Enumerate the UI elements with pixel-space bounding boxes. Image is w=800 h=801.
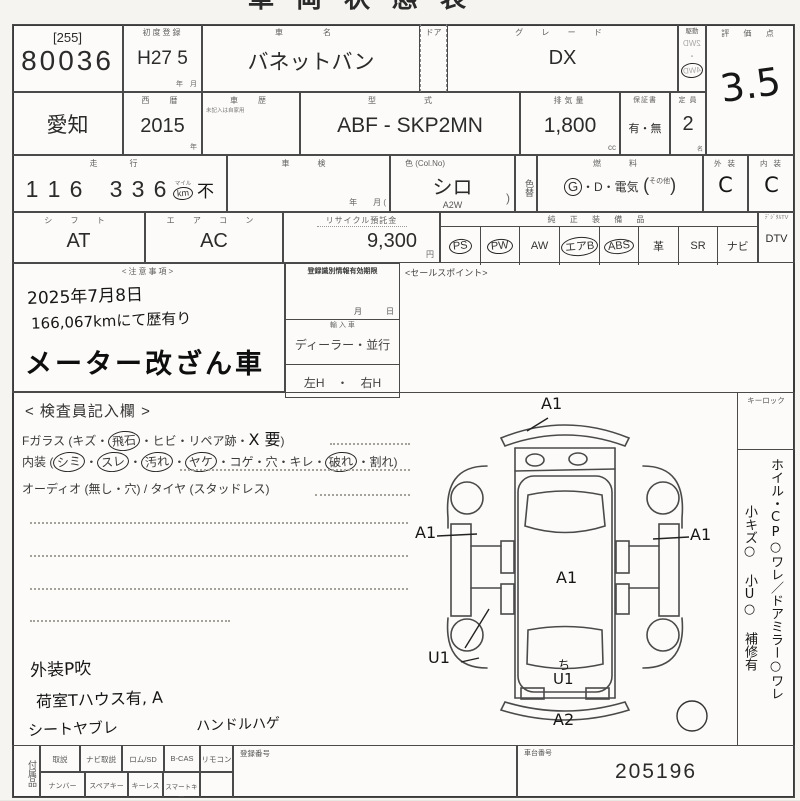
mileage-digit: 6 bbox=[65, 176, 87, 203]
divider bbox=[12, 392, 795, 393]
chassis-number: 205196 bbox=[518, 760, 794, 784]
recycle-label: リサイクル預託金 bbox=[317, 215, 407, 227]
dotted-line bbox=[180, 469, 410, 471]
equip-abs: ABS bbox=[599, 227, 639, 265]
history-label: 車 歴 bbox=[203, 95, 299, 106]
history-box: 車 歴 未記入は自家用 bbox=[202, 92, 300, 155]
shift-label: シ フ ト bbox=[13, 215, 144, 226]
first-registration-unit: 年 月 bbox=[176, 79, 197, 89]
model-value: ABF - SKP2MN bbox=[301, 114, 519, 138]
aircon-box: エ ア コ ン AC bbox=[145, 212, 283, 263]
mileage-hand-mark: 不 bbox=[197, 177, 214, 202]
damage-mark-rear-door: U1 bbox=[553, 670, 574, 688]
interior-grade: C bbox=[749, 173, 794, 197]
chassis-number-box: 車台番号 205196 bbox=[517, 745, 795, 798]
equipment-box: 純 正 装 備 品 PS PW AW エアB ABS 革 SR ナビ bbox=[440, 212, 758, 263]
cell-rom-sd: ロム/SD bbox=[122, 745, 164, 772]
exterior-grade-box: 外 装 C bbox=[703, 155, 748, 212]
cell-number-plate: ナンバー bbox=[40, 772, 85, 798]
displacement-box: 排気量 1,800 cc bbox=[520, 92, 620, 155]
color-box: 色 (Col.No) シロ A2W ) bbox=[390, 155, 515, 212]
equip-leather: 革 bbox=[638, 227, 678, 265]
hand-note-handle: ハンドルハゲ bbox=[196, 713, 281, 736]
prefecture-value: 愛知 bbox=[13, 109, 122, 139]
meter-tampered-stamp: メーター改ざん車 bbox=[25, 342, 265, 381]
recycle-unit: 円 bbox=[426, 249, 434, 260]
damage-mark-front: A1 bbox=[541, 394, 562, 413]
drive-separator: ・ bbox=[688, 52, 696, 61]
sales-point-label: <セールスポイント> bbox=[405, 266, 488, 279]
interior-stain-circled: シミ bbox=[53, 451, 87, 474]
cell-smart-key: スマートキー bbox=[163, 772, 200, 798]
history-note: 未記入は自家用 bbox=[203, 106, 299, 114]
mileage-digit: 3 bbox=[127, 176, 149, 203]
dtv-box: ﾃﾞｼﾞﾀﾙTV DTV bbox=[758, 212, 795, 263]
dealer-parallel-label: ディーラー・並行 bbox=[286, 336, 399, 353]
equip-pw: PW bbox=[480, 227, 520, 265]
mileage-digit: 3 bbox=[105, 176, 127, 203]
grade-box: グ レ ー ド DX bbox=[447, 24, 678, 92]
equip-sr: SR bbox=[678, 227, 718, 265]
audio-tire-line: オーディオ (無し・穴) / タイヤ (スタッドレス) bbox=[22, 480, 269, 497]
interior-dirt-circled: 汚れ bbox=[141, 451, 175, 474]
first-registration-value: H27 5 bbox=[124, 48, 201, 70]
first-registration-box: 初度登録 H27 5 年 月 bbox=[123, 24, 202, 92]
model-box: 型 式 ABF - SKP2MN bbox=[300, 92, 520, 155]
year-label: 西 暦 bbox=[124, 95, 201, 106]
caution-line1: 2025年7月8日 bbox=[27, 280, 144, 309]
registration-number-box: 登録番号 bbox=[233, 745, 517, 798]
car-name: バネットバン bbox=[203, 46, 419, 76]
first-registration-label: 初度登録 bbox=[124, 27, 201, 38]
interior-label: 内 装 bbox=[749, 158, 794, 169]
warranty-box: 保証書 有・無 bbox=[620, 92, 670, 155]
mileage-km-circled: km bbox=[172, 186, 193, 201]
damage-mark-left: A1 bbox=[415, 523, 436, 542]
drive-option-4wd-circled: 4WD bbox=[680, 62, 703, 79]
shaken-box: 車 検 年 月 ( bbox=[227, 155, 390, 212]
shift-box: シ フ ト AT bbox=[12, 212, 145, 263]
score-value: 3.5 bbox=[704, 57, 796, 113]
fuel-box: 燃 料 G・D・電気 (その他) bbox=[537, 155, 703, 212]
cell-manual: 取説 bbox=[40, 745, 80, 772]
damage-mark-roof: A1 bbox=[556, 568, 577, 587]
dotted-line bbox=[30, 522, 408, 524]
cell-empty bbox=[200, 772, 233, 798]
capacity-label: 定 員 bbox=[671, 95, 705, 106]
year-value: 2015 bbox=[124, 115, 201, 138]
dotted-line bbox=[30, 588, 408, 590]
fuel-other-label: その他 bbox=[649, 178, 670, 185]
drive-option-2wd: 2WD bbox=[683, 37, 701, 50]
chassis-number-label: 車台番号 bbox=[518, 746, 794, 758]
dotted-line bbox=[315, 494, 410, 496]
year-unit: 年 bbox=[190, 142, 197, 152]
score-box: 評 価 点 3.5 bbox=[706, 24, 795, 155]
mileage-box: 走 行 1 1 6 3 3 6 マイル km 不 bbox=[12, 155, 227, 212]
equip-ps: PS bbox=[441, 227, 480, 265]
grade-label: グ レ ー ド bbox=[448, 27, 677, 38]
color-change-box: 色替 bbox=[515, 155, 537, 212]
fuel-gasoline-circled: G bbox=[563, 177, 583, 197]
glass-hand-mark: X 要 bbox=[248, 430, 280, 449]
dotted-line bbox=[330, 443, 410, 445]
import-label: 輸 入 車 bbox=[286, 319, 399, 330]
interior-scratch-circled: スレ bbox=[97, 451, 131, 474]
handle-position-label: 左H ・ 右H bbox=[286, 374, 399, 391]
caution-line2: 166,067kmにて歴有り bbox=[31, 307, 192, 334]
hand-note-seat: シートヤブレ bbox=[28, 716, 119, 740]
dotted-line bbox=[30, 555, 408, 557]
auction-sheet: 車両状態表 [255] 80036 初度登録 H27 5 年 月 車 名 バネッ… bbox=[0, 0, 800, 800]
caution-box: <注意事項> 2025年7月8日 166,067kmにて歴有り メーター改ざん車 bbox=[12, 263, 285, 392]
registration-info-box: 登録識別情報有効期限 月 日 輸 入 車 ディーラー・並行 左H ・ 右H bbox=[285, 263, 400, 398]
warranty-value: 有・無 bbox=[621, 120, 669, 136]
color-value: シロ bbox=[391, 171, 514, 200]
capacity-value: 2 bbox=[671, 113, 705, 136]
score-label: 評 価 点 bbox=[707, 28, 794, 39]
mileage-label: 走 行 bbox=[13, 158, 226, 169]
fuel-paren-close: ) bbox=[670, 175, 676, 195]
registration-info-title: 登録識別情報有効期限 bbox=[286, 266, 399, 276]
sidebar-note-col1: ホイル・CP○ワレ／ドアミラー○ワレ bbox=[768, 458, 783, 743]
fuel-label: 燃 料 bbox=[538, 158, 702, 169]
exterior-label: 外 装 bbox=[704, 158, 747, 169]
car-name-box: 車 名 バネットバン bbox=[202, 24, 420, 92]
hand-note-cargo: 荷室Tハウス有, A bbox=[36, 684, 164, 712]
equip-airbag: エアB bbox=[559, 227, 599, 265]
cell-remote: リモコン bbox=[200, 745, 233, 772]
damage-mark-lower-left: U1 bbox=[428, 648, 450, 667]
color-paren: ) bbox=[506, 191, 510, 205]
dtv-header: ﾃﾞｼﾞﾀﾙTV bbox=[759, 213, 794, 221]
dtv-value: DTV bbox=[759, 233, 794, 245]
color-label: 色 (Col.No) bbox=[391, 158, 514, 169]
capacity-unit: 名 bbox=[697, 144, 703, 153]
interior-grade-box: 内 装 C bbox=[748, 155, 795, 212]
car-name-label: 車 名 bbox=[203, 27, 419, 38]
year-box: 西 暦 2015 年 bbox=[123, 92, 202, 155]
shaken-label: 車 検 bbox=[228, 158, 389, 169]
keylock-label: キーロック bbox=[738, 395, 794, 406]
mileage-digit: 1 bbox=[21, 176, 43, 203]
shaken-unit: 年 月 ( bbox=[349, 197, 386, 208]
cell-bcas: B-CAS bbox=[164, 745, 200, 772]
sidebar-note-col2: 小キズ○ 小U○ 補修有 bbox=[742, 505, 757, 743]
cell-navi-manual: ナビ取説 bbox=[80, 745, 122, 772]
page-title: 車両状態表 bbox=[248, 0, 488, 11]
capacity-box: 定 員 2 名 bbox=[670, 92, 706, 155]
inspector-title: < 検査員記入欄 > bbox=[25, 400, 151, 421]
aircon-value: AC bbox=[146, 230, 282, 253]
prefecture-box: 愛知 bbox=[12, 92, 123, 155]
page-title-clipped: 車両状態表 bbox=[248, 0, 578, 11]
registration-date-unit: 月 日 bbox=[354, 306, 394, 317]
caution-label: <注意事項> bbox=[13, 266, 284, 277]
damage-mark-right: A1 bbox=[690, 525, 711, 544]
exterior-grade: C bbox=[704, 173, 747, 197]
displacement-label: 排気量 bbox=[521, 95, 619, 106]
lot-tag: [255] bbox=[13, 30, 122, 45]
drive-box: 駆動 2WD ・ 4WD bbox=[678, 24, 706, 92]
equip-aw: AW bbox=[519, 227, 559, 265]
door-box: ドア bbox=[420, 24, 447, 92]
fuel-options: ・D・電気 bbox=[582, 180, 639, 194]
shift-value: AT bbox=[13, 230, 144, 253]
equipment-label: 純 正 装 備 品 bbox=[441, 214, 757, 225]
aircon-label: エ ア コ ン bbox=[146, 215, 282, 226]
recycle-box: リサイクル預託金 9,300 円 bbox=[283, 212, 440, 263]
cell-keyless: キーレス bbox=[128, 772, 163, 798]
color-number: A2W bbox=[391, 200, 514, 210]
displacement-unit: cc bbox=[608, 143, 616, 152]
mileage-digit: 1 bbox=[43, 176, 65, 203]
accessories-label: 付属品 bbox=[12, 745, 40, 798]
registration-number-label: 登録番号 bbox=[234, 746, 516, 759]
damage-mark-rear: A2 bbox=[553, 710, 574, 729]
mileage-digit: 6 bbox=[149, 176, 171, 203]
drive-label: 駆動 bbox=[679, 26, 705, 37]
recycle-value: 9,300 bbox=[284, 230, 439, 253]
sidebar-divider bbox=[737, 392, 738, 745]
warranty-label: 保証書 bbox=[621, 95, 669, 106]
dotted-line bbox=[30, 620, 230, 622]
keylock-box: キーロック bbox=[737, 392, 795, 450]
hand-note-exterior: 外装P吹 bbox=[30, 654, 92, 681]
door-label: ドア bbox=[421, 27, 446, 38]
model-label: 型 式 bbox=[301, 95, 519, 106]
lot-number: 80036 bbox=[13, 45, 122, 77]
glass-flying-stone-circled: 飛石 bbox=[108, 430, 142, 453]
mileage-mile-label: マイル bbox=[175, 179, 192, 187]
grade-value: DX bbox=[448, 47, 677, 70]
cell-spare-key: スペアキー bbox=[85, 772, 128, 798]
equip-navi: ナビ bbox=[717, 227, 757, 265]
displacement-value: 1,800 bbox=[521, 114, 619, 138]
glass-condition-line: Fガラス (キズ・飛石・ヒビ・リペア跡・X 要) bbox=[22, 426, 285, 451]
lot-box: [255] 80036 bbox=[12, 24, 123, 92]
